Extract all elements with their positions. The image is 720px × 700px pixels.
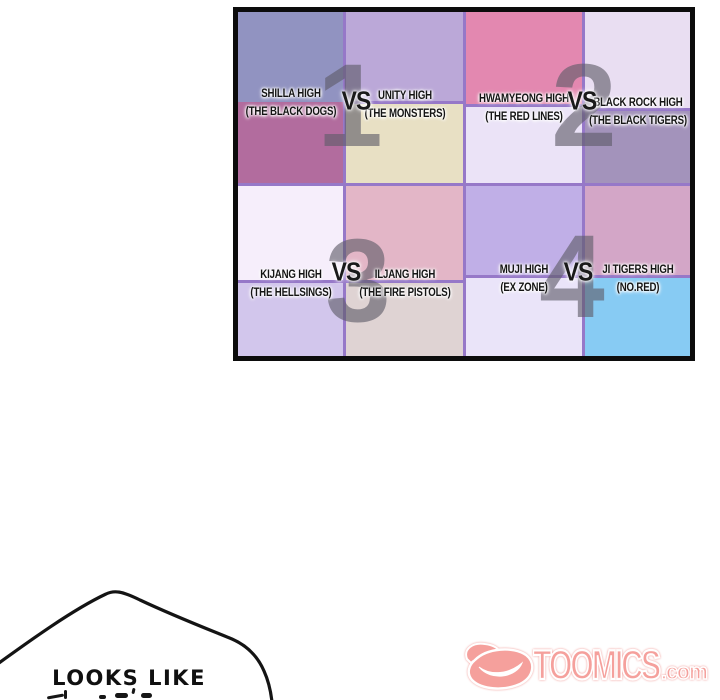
bracket-grid: SHILLA HIGH (THE BLACK DOGS) UNITY HIGH … bbox=[238, 12, 690, 356]
team-name: (THE BLACK DOGS) bbox=[245, 106, 336, 118]
comic-page: SHILLA HIGH (THE BLACK DOGS) UNITY HIGH … bbox=[0, 0, 720, 700]
cutoff-text-fragment bbox=[115, 693, 128, 698]
team-name: (THE HELLSINGS) bbox=[250, 287, 331, 299]
team-name: (THE FIRE PISTOLS) bbox=[359, 287, 450, 299]
vs-label-4: VS bbox=[564, 257, 593, 288]
team-name: (THE MONSTERS) bbox=[364, 108, 445, 120]
team-name: (EX ZONE) bbox=[500, 282, 547, 294]
vs-label-3: VS bbox=[332, 257, 361, 288]
toomics-watermark: TOOMICS .com bbox=[461, 639, 713, 695]
school-name: JI TIGERS HIGH bbox=[602, 264, 673, 276]
toomics-logo-text: TOOMICS bbox=[533, 641, 660, 688]
cutoff-text-fragment bbox=[141, 693, 152, 698]
team-name: (NO.RED) bbox=[616, 282, 659, 294]
school-name: HWAMYEONG HIGH bbox=[479, 93, 569, 105]
speech-bubble-text: LOOKS LIKE bbox=[52, 666, 206, 690]
school-name: MUJI HIGH bbox=[500, 264, 548, 276]
vs-label-2: VS bbox=[568, 86, 597, 117]
tournament-bracket: SHILLA HIGH (THE BLACK DOGS) UNITY HIGH … bbox=[233, 7, 695, 361]
school-name: ILJANG HIGH bbox=[374, 269, 434, 281]
team-name: (THE RED LINES) bbox=[485, 111, 562, 123]
toomics-logo-domain: .com bbox=[661, 659, 707, 684]
school-name: UNITY HIGH bbox=[378, 90, 432, 102]
school-name: SHILLA HIGH bbox=[261, 88, 321, 100]
school-name: BLACK ROCK HIGH bbox=[593, 97, 682, 109]
cutoff-text-fragment bbox=[64, 690, 67, 699]
toomics-devil-icon bbox=[461, 639, 539, 695]
school-name: KIJANG HIGH bbox=[260, 269, 321, 281]
vs-label-1: VS bbox=[342, 86, 371, 117]
team-name: (THE BLACK TIGERS) bbox=[589, 115, 687, 127]
cutoff-text-fragment bbox=[99, 695, 106, 699]
